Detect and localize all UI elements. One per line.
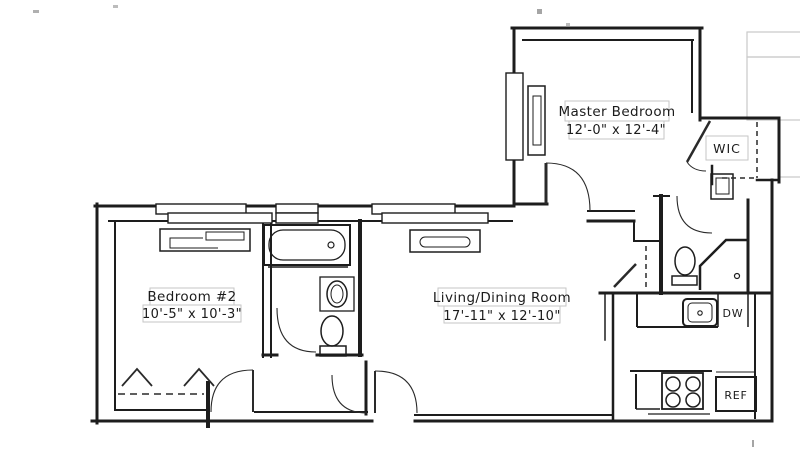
scan-speck-3 [537, 9, 542, 14]
paper-background [0, 0, 800, 456]
window-living-b [382, 213, 488, 223]
scan-speck-1 [33, 10, 39, 13]
floor-plan-page: Master Bedroom 12'-0" x 12'-4" WIC Bedro… [0, 0, 800, 456]
label-refrigerator: REF [724, 389, 747, 402]
window-bedroom2-b [168, 213, 272, 223]
label-master-bedroom-dims: 12'-0" x 12'-4" [566, 123, 666, 138]
label-dishwasher: DW [723, 307, 744, 320]
window-bath-b [276, 213, 318, 223]
label-living-dining: Living/Dining Room [433, 290, 571, 306]
scan-speck-4 [566, 23, 570, 26]
scan-speck-2 [113, 5, 118, 8]
label-bedroom2: Bedroom #2 [147, 289, 236, 305]
floor-plan-drawing: Master Bedroom 12'-0" x 12'-4" WIC Bedro… [0, 0, 800, 456]
label-bedroom2-dims: 10'-5" x 10'-3" [142, 307, 242, 322]
scan-speck-5 [752, 440, 754, 447]
label-living-dining-dims: 17'-11" x 12'-10" [443, 309, 560, 324]
label-wic: WIC [713, 141, 741, 156]
window-bath-a [276, 204, 318, 213]
label-master-bedroom: Master Bedroom [558, 104, 675, 120]
window-master-bedroom [506, 73, 523, 160]
